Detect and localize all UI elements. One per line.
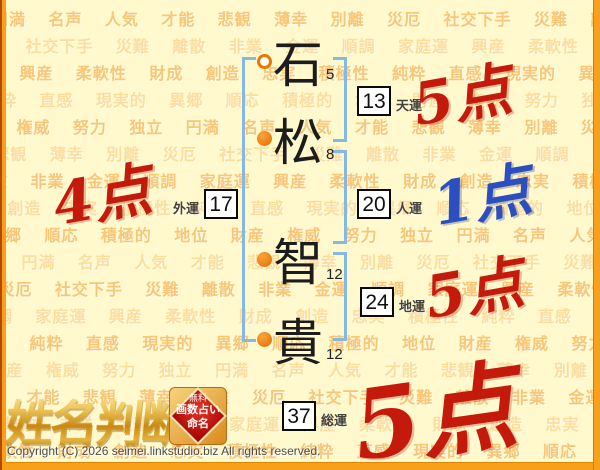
name-character-3: 智 — [270, 236, 326, 290]
gaiun-label: 外運 — [173, 192, 199, 217]
souun-label: 総運 — [321, 404, 347, 429]
page-border-bottom — [0, 462, 600, 470]
badge-text: 無料 画数占い 命名 — [170, 393, 226, 432]
bracket-jinun — [333, 150, 347, 244]
stroke-count-1: 5 — [326, 66, 352, 83]
tenun-value-box: 13 — [357, 86, 391, 116]
char-marker-filled-circle — [257, 252, 272, 267]
chiun-label: 地運 — [399, 290, 425, 315]
badge-line-meimei: 命名 — [170, 418, 226, 432]
page-border-left — [0, 0, 6, 470]
jinun-label: 人運 — [396, 192, 422, 217]
fortune-chiun: 24 地運 — [360, 287, 425, 317]
name-character-1: 石 — [270, 38, 326, 92]
chiun-value-box: 24 — [360, 287, 394, 317]
fortune-souun: 37 総運 — [282, 401, 347, 431]
fortune-jinun: 20 人運 — [357, 189, 422, 219]
seimei-handan-result-page: 円満 名声 人気 才能 悲観 薄幸 別離 災厄 社交下手 災難 離散 非業災厄 … — [0, 0, 600, 470]
souun-score: 5点 — [343, 327, 524, 470]
souun-value-box: 37 — [282, 401, 316, 431]
stroke-count-3: 12 — [326, 266, 352, 283]
badge-line-kakusu: 画数占い — [170, 404, 226, 418]
char-marker-filled-circle — [257, 332, 272, 347]
jinun-score: 1点 — [425, 142, 536, 242]
copyright-text: Copyright (C) 2026 seimei.linkstudio.biz… — [7, 444, 320, 458]
badge-line-muryo: 無料 — [170, 393, 226, 404]
gaiun-score: 4点 — [45, 142, 156, 242]
background-word-row: 円満 名声 人気 才能 悲観 薄幸 別離 災厄 社交下手 災難 離散 非業 — [0, 6, 600, 30]
page-border-right — [593, 0, 600, 470]
jinun-value-box: 20 — [357, 189, 391, 219]
name-character-4: 貴 — [270, 316, 326, 370]
stroke-count-2: 8 — [326, 146, 352, 163]
fortune-gaiun: 外運 17 — [173, 189, 238, 219]
bracket-gaiun — [242, 57, 256, 342]
chiun-score: 5点 — [417, 235, 528, 335]
tenun-score: 5点 — [405, 42, 516, 142]
free-naming-badge[interactable]: 無料 画数占い 命名 — [169, 387, 227, 445]
char-marker-open-circle — [257, 54, 272, 69]
name-character-2: 松 — [270, 116, 326, 170]
gaiun-value-box: 17 — [204, 189, 238, 219]
char-marker-filled-circle — [257, 131, 272, 146]
